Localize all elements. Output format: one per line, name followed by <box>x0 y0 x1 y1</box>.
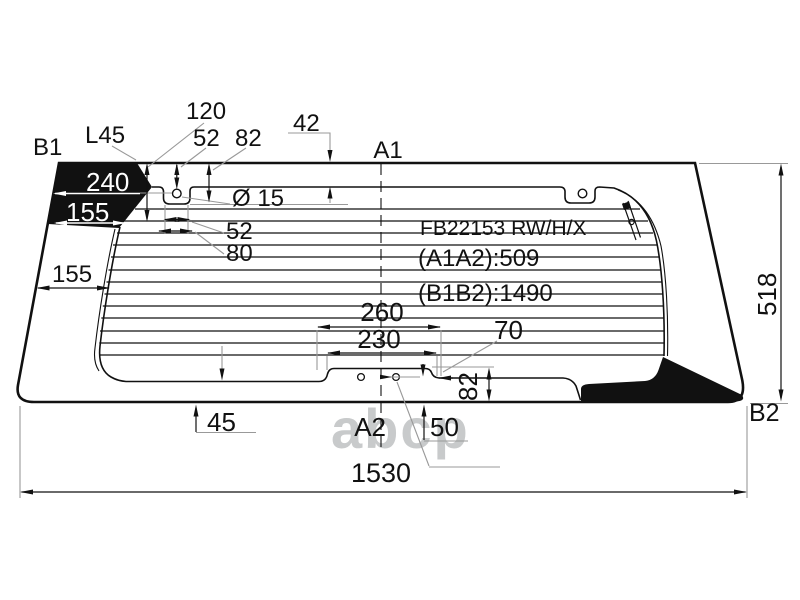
dim-45-label: 45 <box>207 407 236 437</box>
dim-a1a2-text: (A1A2):509 <box>418 245 539 272</box>
dim-82-top-label: 82 <box>235 125 262 152</box>
dim-52-top-label: 52 <box>193 125 220 152</box>
dim-230-label: 230 <box>357 324 400 354</box>
dim-155-left-label: 155 <box>52 261 92 288</box>
point-label-b1: B1 <box>33 134 62 161</box>
dim-b1b2-text: (B1B2):1490 <box>418 280 553 307</box>
hole-top-right <box>578 189 587 198</box>
part-code: FB22153 RW/H/X <box>420 217 587 240</box>
hole-top-left <box>173 189 182 198</box>
point-label-a2: A2 <box>354 412 386 442</box>
point-label-a1: A1 <box>373 137 402 164</box>
drawing-canvas: abcp <box>0 0 800 600</box>
dim-70-label: 70 <box>494 315 523 345</box>
dim-1530-label: 1530 <box>351 458 411 488</box>
point-label-b2: B2 <box>749 399 780 427</box>
dim-42-label: 42 <box>293 110 320 137</box>
dim-120-label: 120 <box>186 98 226 125</box>
dim-dia15-top-label: Ø 15 <box>232 185 284 212</box>
dim-80-label: 80 <box>226 240 253 267</box>
technical-drawing-rear-window: abcp <box>0 0 800 600</box>
dim-155-band-label: 155 <box>66 197 109 227</box>
hole-bottom-plain <box>358 374 365 381</box>
dim-50-label: 50 <box>430 412 459 442</box>
ceramic-band-bottom-right <box>581 357 743 402</box>
trim-double-line-left <box>95 229 116 371</box>
dim-82-bottom-label: 82 <box>453 372 483 401</box>
dim-l45-label: L45 <box>85 122 125 149</box>
dim-518-label: 518 <box>752 273 782 316</box>
dim-240-label: 240 <box>86 167 129 197</box>
dim-260-label: 260 <box>360 297 403 327</box>
